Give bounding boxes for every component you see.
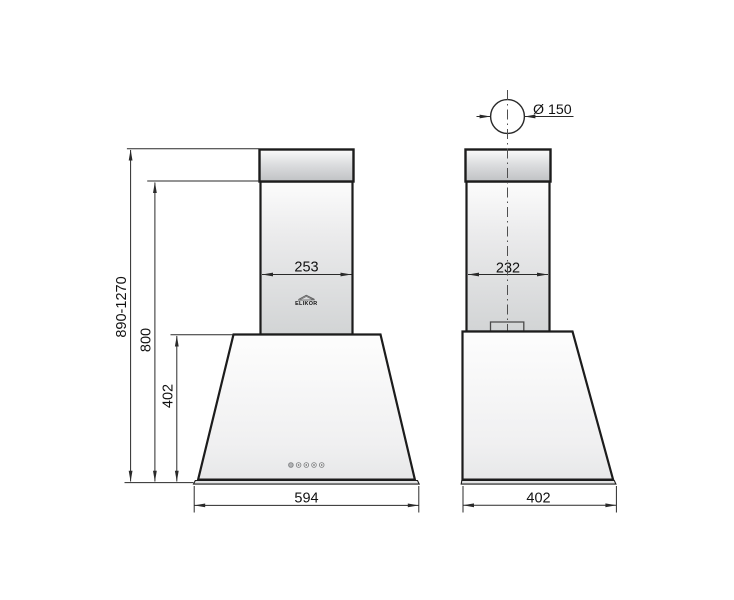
svg-text:402: 402: [160, 384, 176, 408]
svg-text:Ø 150: Ø 150: [533, 102, 572, 118]
svg-text:402: 402: [526, 490, 550, 506]
svg-text:ELIKOR: ELIKOR: [295, 301, 317, 307]
svg-text:253: 253: [294, 260, 318, 276]
svg-text:594: 594: [294, 491, 318, 507]
svg-text:890-1270: 890-1270: [114, 276, 130, 337]
svg-text:800: 800: [139, 328, 155, 352]
